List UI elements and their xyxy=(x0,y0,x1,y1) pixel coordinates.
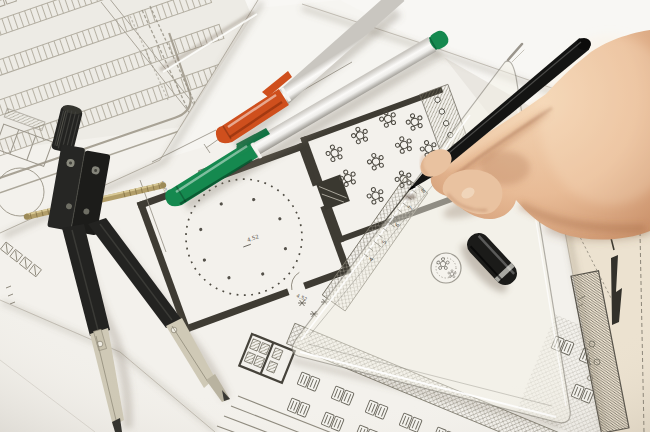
vignette xyxy=(0,0,650,432)
photo-canvas: 4.52 xyxy=(0,0,650,432)
drafting-scene: 4.52 xyxy=(0,0,650,432)
